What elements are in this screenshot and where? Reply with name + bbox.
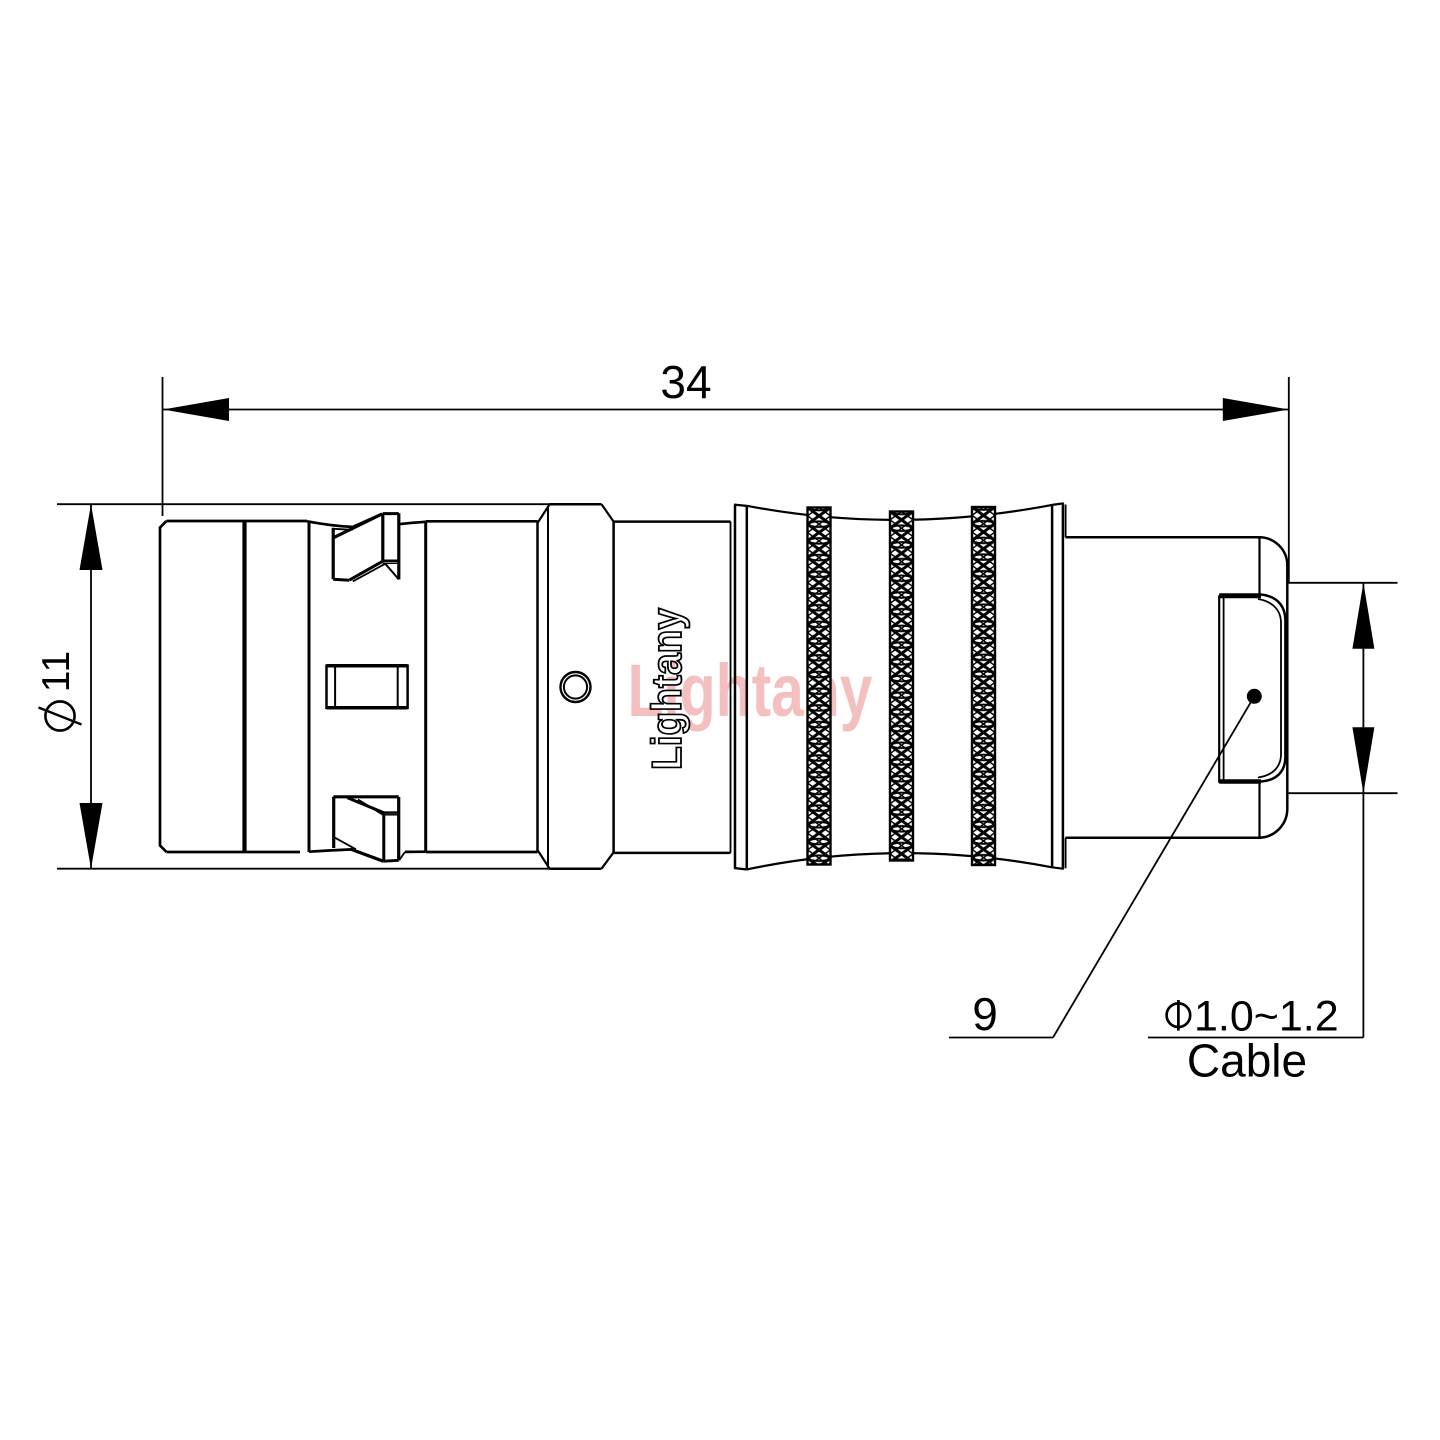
svg-text:Lightany: Lightany <box>643 607 690 770</box>
svg-text:9: 9 <box>972 988 998 1040</box>
svg-text:34: 34 <box>660 356 711 408</box>
svg-text:Cable: Cable <box>1187 1035 1307 1087</box>
svg-text:11: 11 <box>35 650 78 693</box>
svg-text:1.0~1.2: 1.0~1.2 <box>1194 993 1339 1041</box>
